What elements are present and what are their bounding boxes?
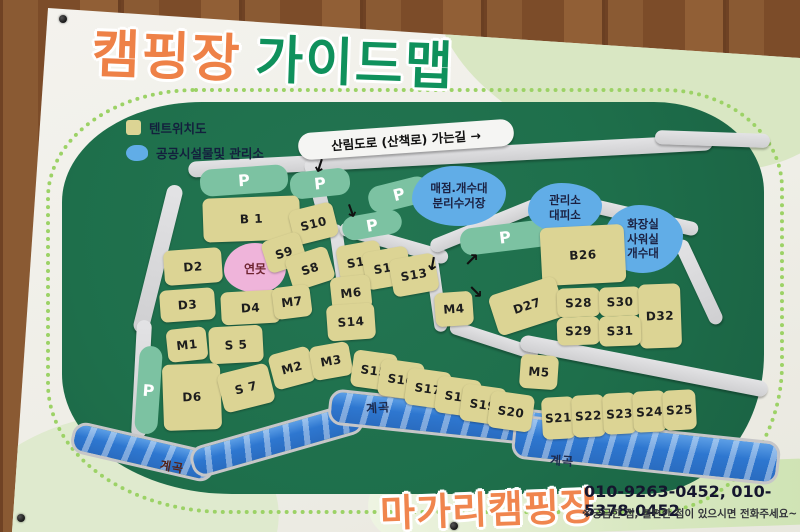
- campsite-D32: D32: [638, 283, 682, 348]
- facility-label-line: 대피소: [549, 208, 581, 223]
- screw-bottom-left: [17, 514, 25, 522]
- facility-swatch-icon: [126, 145, 148, 161]
- campsite-D2: D2: [163, 247, 223, 286]
- screw-bottom-center: [450, 522, 458, 530]
- tent-site-swatch-icon: [126, 120, 141, 135]
- title-campground: 캠핑장: [91, 12, 243, 92]
- campsite-S29: S29: [557, 316, 601, 345]
- screw-top-left: [59, 15, 67, 23]
- legend: 텐트위치도 공공시설물및 관리소: [126, 118, 264, 168]
- facility-label-line: 매점.개수대: [430, 181, 487, 196]
- campsite-S30: S30: [599, 286, 642, 316]
- campsite-M7: M7: [271, 284, 313, 320]
- campsite-D3: D3: [159, 287, 216, 323]
- direction-arrow: ↘: [468, 282, 483, 303]
- legend-item-facility: 공공시설물및 관리소: [126, 143, 264, 162]
- facility-label-line: 화장실: [627, 217, 659, 232]
- campsite-S31: S31: [598, 315, 641, 346]
- stream-label: 계곡: [365, 398, 390, 417]
- page-title: 캠핑장 가이드맵: [91, 12, 456, 100]
- campsite-S14: S14: [326, 302, 376, 341]
- campsite-S20: S20: [487, 390, 536, 433]
- facility-label-line: 관리소: [549, 193, 581, 208]
- facility-label-line: 사워실: [627, 232, 659, 247]
- campsite-M3: M3: [308, 341, 353, 381]
- legend-facility-label: 공공시설물및 관리소: [156, 143, 264, 162]
- campsite-S5: S 5: [208, 325, 264, 365]
- campground-brand-name: 마가리캠핑장: [379, 475, 597, 532]
- campsite-S28: S28: [557, 287, 601, 317]
- campsite-S25: S25: [662, 389, 697, 431]
- campsite-D6: D6: [162, 363, 222, 431]
- legend-item-tent: 텐트위치도: [126, 118, 264, 137]
- legend-tent-label: 텐트위치도: [149, 118, 207, 137]
- campsite-M1: M1: [165, 326, 208, 363]
- facility-label-line: 개수대: [627, 246, 659, 261]
- direction-arrow: ↗: [464, 250, 479, 271]
- screw-top-right: [766, 46, 774, 54]
- footer-note: ※궁금한 점, 불편한 점이 있으시면 전화주세요~: [582, 506, 797, 521]
- campsite-S22: S22: [571, 394, 606, 438]
- stream-label: 계곡: [549, 451, 574, 470]
- campsite-M5: M5: [519, 354, 559, 391]
- title-guidemap: 가이드맵: [254, 17, 456, 99]
- campground-guide-map-photo: PPPPPP매점.개수대분리수거장관리소대피소화장실사워실개수대연못B 1S10…: [0, 0, 800, 532]
- sign-board: PPPPPP매점.개수대분리수거장관리소대피소화장실사워실개수대연못B 1S10…: [0, 0, 800, 532]
- facility-label-line: 분리수거장: [433, 196, 486, 211]
